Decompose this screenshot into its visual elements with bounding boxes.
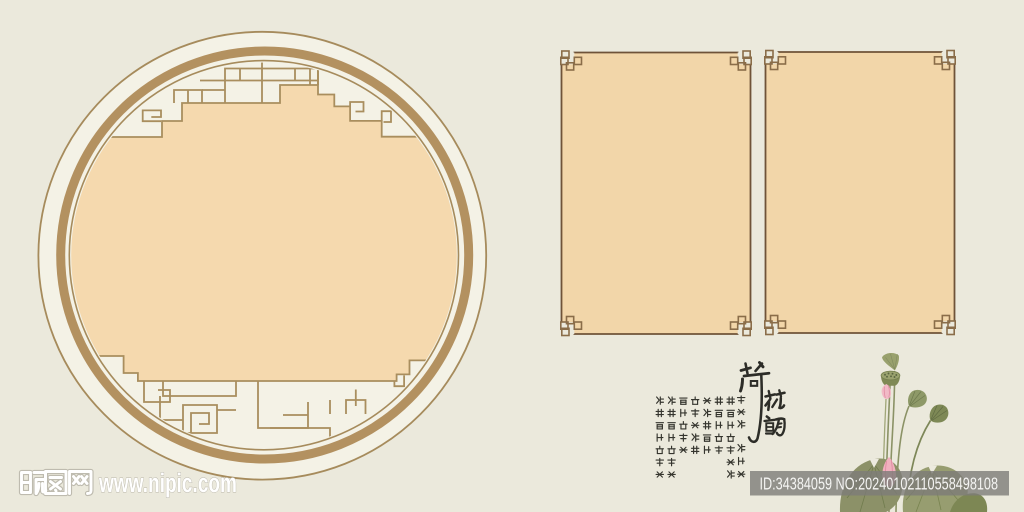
svg-text:ID:34384059 NO:202401021105584: ID:34384059 NO:20240102110558498108 xyxy=(760,474,999,494)
svg-text:www.nipic.com: www.nipic.com xyxy=(98,468,237,498)
